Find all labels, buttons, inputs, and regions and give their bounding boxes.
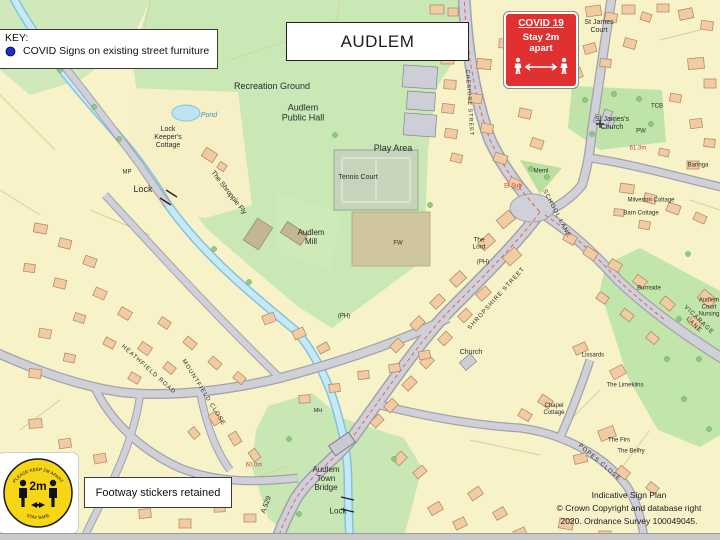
covid-sign: COVID 19 Stay 2m apart: [504, 12, 578, 88]
note-box-label: Footway stickers retained: [96, 487, 221, 499]
covid-sign-line2: apart: [529, 43, 552, 54]
sticker-graphic: PLEASE KEEP 2M APART STAY SAFE 2m: [0, 453, 78, 533]
sign-plan-map: Recreation GroundAudlem Public HallPlay …: [0, 0, 720, 540]
footway-sticker: PLEASE KEEP 2M APART STAY SAFE 2m: [0, 453, 78, 533]
key-entry: COVID Signs on existing street furniture: [5, 45, 211, 57]
pond: [172, 105, 200, 121]
key-title: KEY:: [5, 32, 211, 44]
allotments-area: [352, 212, 430, 266]
covid-sign-line1: Stay 2m: [523, 32, 559, 43]
pedestrian-icon-left: [515, 58, 522, 74]
note-box: Footway stickers retained: [84, 477, 232, 508]
sticker-value: 2m: [29, 479, 46, 493]
pedestrian-icon-right: [561, 58, 568, 74]
attribution-line2: © Crown Copyright and database right: [538, 502, 720, 515]
village-square: [510, 194, 554, 222]
tennis-court-area: [334, 150, 418, 210]
key-box: KEY: COVID Signs on existing street furn…: [0, 29, 218, 69]
covid-sign-heading: COVID 19: [518, 18, 564, 29]
map-title: AUDLEM: [341, 32, 415, 52]
title-box: AUDLEM: [286, 22, 469, 61]
covid-sign-dot-icon: [5, 46, 16, 57]
double-arrow-icon: [526, 64, 556, 70]
attribution: Indicative Sign Plan © Crown Copyright a…: [538, 489, 720, 527]
key-entry-label: COVID Signs on existing street furniture: [23, 45, 209, 57]
map-canvas: [0, 0, 720, 540]
window-bottom-edge: [0, 533, 720, 540]
attribution-line1: Indicative Sign Plan: [538, 489, 720, 502]
distance-pictogram: [510, 57, 572, 75]
attribution-line3: 2020. Ordnance Survey 100049045.: [538, 515, 720, 528]
